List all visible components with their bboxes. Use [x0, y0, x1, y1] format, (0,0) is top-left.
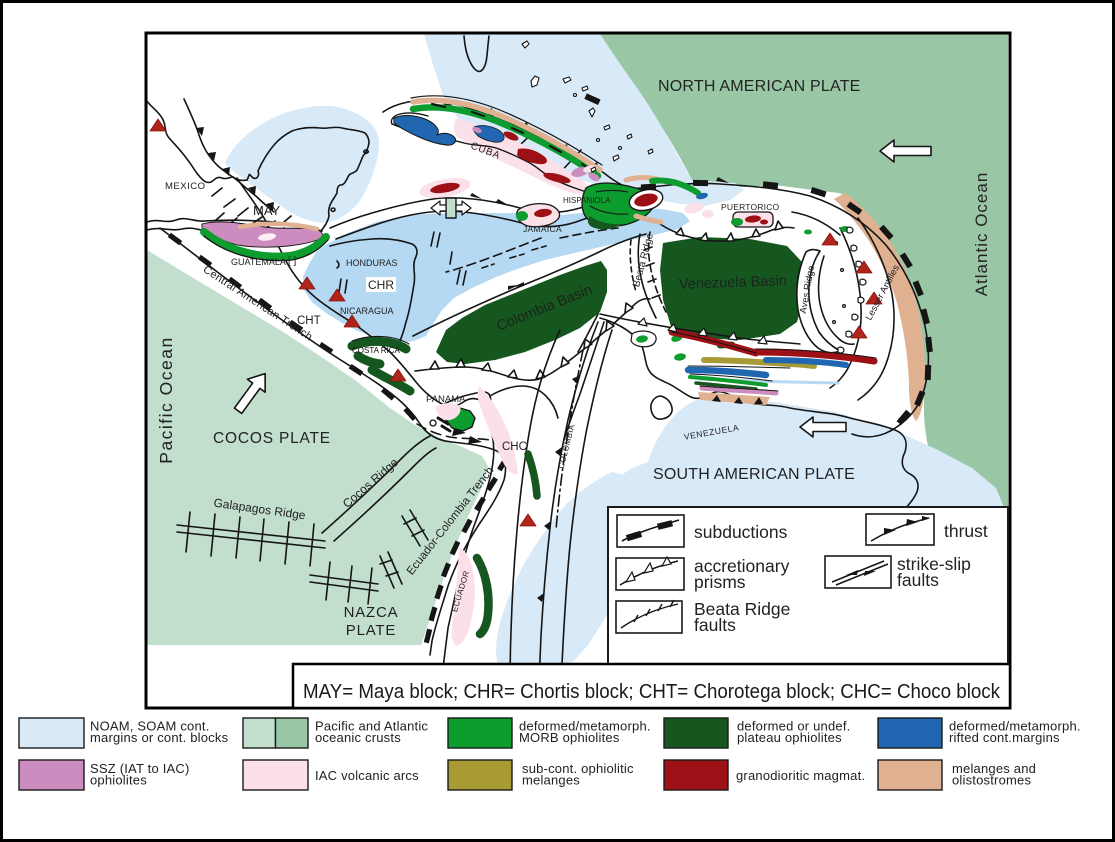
svg-text:thrust: thrust — [944, 521, 988, 541]
svg-text:rifted cont.margins: rifted cont.margins — [949, 730, 1060, 745]
svg-text:NORTH AMERICAN PLATE: NORTH AMERICAN PLATE — [658, 78, 861, 95]
svg-text:olistostromes: olistostromes — [952, 773, 1031, 788]
svg-text:melanges: melanges — [522, 773, 580, 788]
svg-text:subductions: subductions — [694, 522, 788, 542]
svg-text:Atlantic Ocean: Atlantic Ocean — [972, 172, 991, 297]
svg-text:GUATEMALA: GUATEMALA — [231, 257, 286, 267]
svg-text:PUERTORICO: PUERTORICO — [721, 202, 780, 212]
svg-text:PLATE: PLATE — [346, 622, 396, 639]
svg-text:prisms: prisms — [694, 572, 746, 592]
svg-text:faults: faults — [694, 615, 736, 635]
svg-text:MORB ophiolites: MORB ophiolites — [519, 730, 620, 745]
svg-text:JAMAICA: JAMAICA — [523, 224, 562, 234]
svg-text:NICARAGUA: NICARAGUA — [340, 306, 394, 316]
svg-text:MEXICO: MEXICO — [165, 181, 205, 192]
svg-text:MAY= Maya block; CHR= Chortis: MAY= Maya block; CHR= Chortis block; CHT… — [303, 681, 1001, 703]
svg-text:[ ]: [ ] — [288, 256, 297, 267]
svg-text:IAC volcanic arcs: IAC volcanic arcs — [315, 768, 419, 783]
svg-text:margins or cont. blocks: margins or cont. blocks — [90, 730, 229, 745]
svg-text:PANAMA: PANAMA — [426, 394, 466, 405]
svg-text:plateau ophiolites: plateau ophiolites — [737, 730, 842, 745]
svg-text:CHR: CHR — [368, 278, 394, 292]
svg-text:HONDURAS: HONDURAS — [346, 258, 398, 268]
svg-text:NAZCA: NAZCA — [344, 604, 399, 621]
svg-text:HISPANIOLA: HISPANIOLA — [563, 196, 611, 205]
svg-text:CHC: CHC — [502, 441, 527, 453]
svg-text:SOUTH AMERICAN PLATE: SOUTH AMERICAN PLATE — [653, 466, 855, 483]
svg-text:COCOS PLATE: COCOS PLATE — [213, 430, 331, 447]
svg-text:granodioritic magmat.: granodioritic magmat. — [736, 768, 865, 783]
svg-text:COSTA RICA: COSTA RICA — [352, 346, 401, 355]
svg-text:Pacific Ocean: Pacific Ocean — [156, 336, 176, 463]
svg-text:faults: faults — [897, 570, 939, 590]
svg-text:MAY: MAY — [253, 203, 281, 218]
svg-text:oceanic crusts: oceanic crusts — [315, 730, 401, 745]
svg-text:ophiolites: ophiolites — [90, 773, 147, 788]
